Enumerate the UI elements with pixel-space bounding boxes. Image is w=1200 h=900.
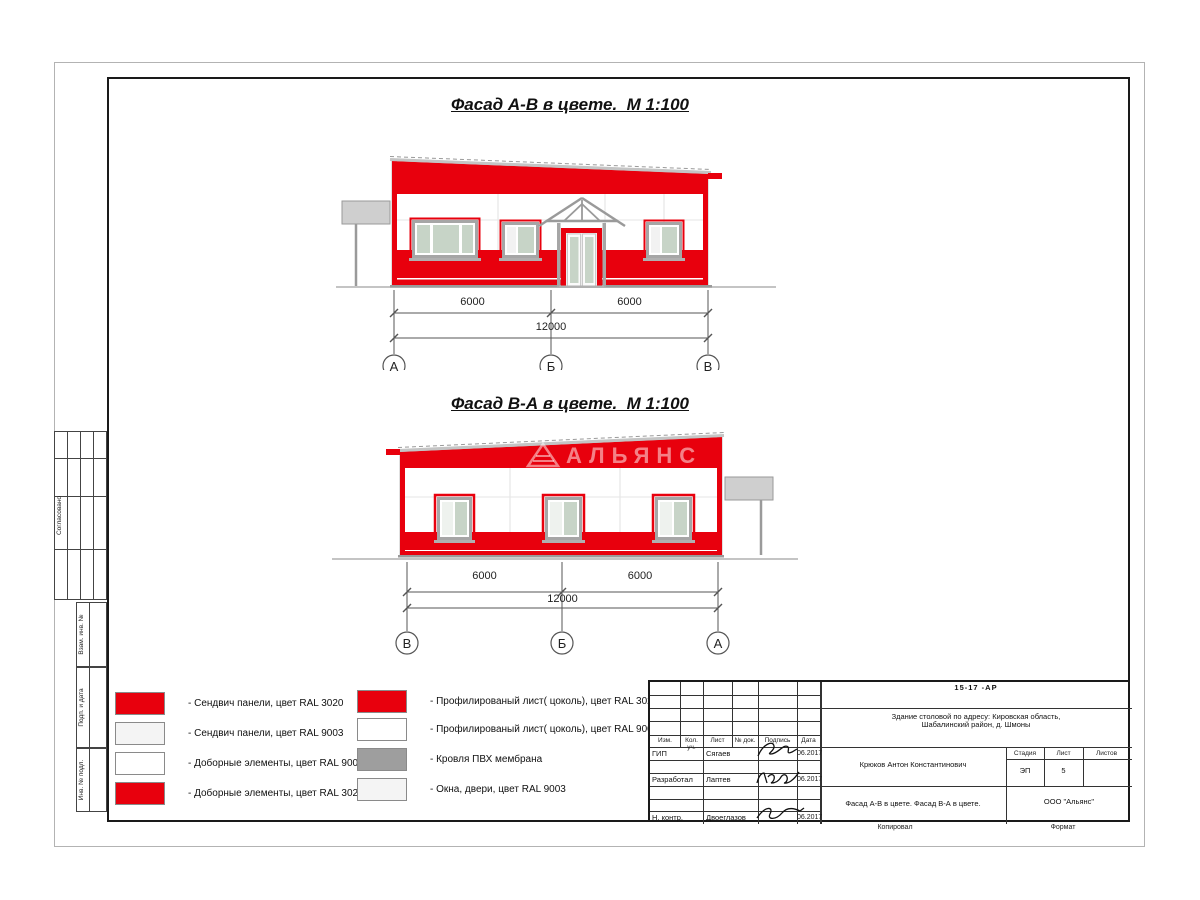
legend-label: - Профилированый лист( цоколь), цвет RAL… (430, 724, 658, 735)
legend-label: - Сендвич панели, цвет RAL 9003 (188, 728, 343, 739)
legend-swatch (115, 722, 165, 745)
legend-swatch (115, 752, 165, 775)
role-cell: Разработал (652, 776, 693, 784)
stage-label: Стадия (1006, 751, 1044, 758)
col-header: Дата (797, 738, 820, 745)
legend-label: - Доборные элементы, цвет RAL 3020 (188, 788, 364, 799)
podp-data-label: Подп. и дата (78, 669, 85, 746)
approved-label: Согласовано (56, 433, 63, 598)
footer-format-label: Формат (1018, 824, 1108, 831)
legend-swatch (357, 690, 407, 713)
legend-label: - Окна, двери, цвет RAL 9003 (430, 784, 566, 795)
name-cell: Двоеглазов (706, 814, 746, 822)
gutter-outlet (386, 449, 400, 455)
facade-ab-drawing (330, 140, 810, 370)
facade-ab-title: Фасад А-В в цвете. М 1:100 (330, 95, 810, 115)
col-header: Лист (703, 738, 732, 745)
dimension-label: 12000 (394, 321, 708, 333)
legend-label: - Профилированый лист( цоколь), цвет RAL… (430, 696, 658, 707)
legend-swatch (357, 748, 407, 771)
signature (754, 767, 802, 789)
chief-name: Крюков Антон Константинович (822, 761, 1004, 769)
axis-marker: А (379, 359, 409, 374)
inv-podl-label: Инв. № подл. (78, 750, 85, 810)
drawing-sheet: Фасад А-В в цвете. М 1:100 (0, 0, 1200, 900)
axis-marker: Б (536, 359, 566, 374)
sheet-title: Фасад А-В в цвете. Фасад В-А в цвете. (822, 800, 1004, 808)
sheets-label: Листов (1083, 751, 1130, 758)
col-header: Кол. уч. (680, 738, 703, 751)
dimension-label: 6000 (551, 296, 708, 308)
axis-marker: В (693, 359, 723, 374)
canopy-left (342, 201, 390, 224)
role-cell: Н. контр. (652, 814, 683, 822)
signature (754, 803, 806, 825)
date-cell: 06.2017 (797, 750, 820, 757)
name-cell: Сягаев (706, 750, 730, 758)
title-block: Изм. Кол. уч. Лист № док. Подпись Дата Г… (648, 680, 1130, 822)
windows (434, 495, 695, 543)
legend-swatch (115, 692, 165, 715)
project-name: Здание столовой по адресу: Кировская обл… (826, 713, 1126, 728)
role-cell: ГИП (652, 750, 667, 758)
dimension-label: 6000 (562, 570, 718, 582)
document-number: 15-17 -АР (820, 684, 1132, 692)
name-cell: Лаптев (706, 776, 731, 784)
dimension-label: 6000 (407, 570, 562, 582)
vzam-inv-label: Взам. инв. № (78, 604, 85, 665)
sheet-label: Лист (1044, 751, 1083, 758)
axis-marker: Б (547, 636, 577, 651)
dimension-label: 6000 (394, 296, 551, 308)
company-watermark: АЛЬЯНС (566, 443, 702, 469)
legend-label: - Доборные элементы, цвет RAL 9003 (188, 758, 364, 769)
company-name: ООО "Альянс" (1006, 798, 1132, 806)
facade-ba-title: Фасад В-А в цвете. М 1:100 (330, 394, 810, 414)
legend-swatch (357, 718, 407, 741)
canopy-right (725, 477, 773, 500)
footer-copy-label: Копировал (850, 824, 940, 831)
legend-swatch (115, 782, 165, 805)
signature (754, 739, 800, 761)
axis-marker: А (703, 636, 733, 651)
sheet-number: 5 (1044, 767, 1083, 775)
axis-marker: В (392, 636, 422, 651)
gutter-outlet (708, 173, 722, 179)
legend-label: - Кровля ПВХ мембрана (430, 754, 542, 765)
legend-swatch (357, 778, 407, 801)
dimension-label: 12000 (407, 593, 718, 605)
col-header: Изм. (650, 738, 680, 745)
stage-value: ЭП (1006, 767, 1044, 775)
legend-label: - Сендвич панели, цвет RAL 3020 (188, 698, 343, 709)
